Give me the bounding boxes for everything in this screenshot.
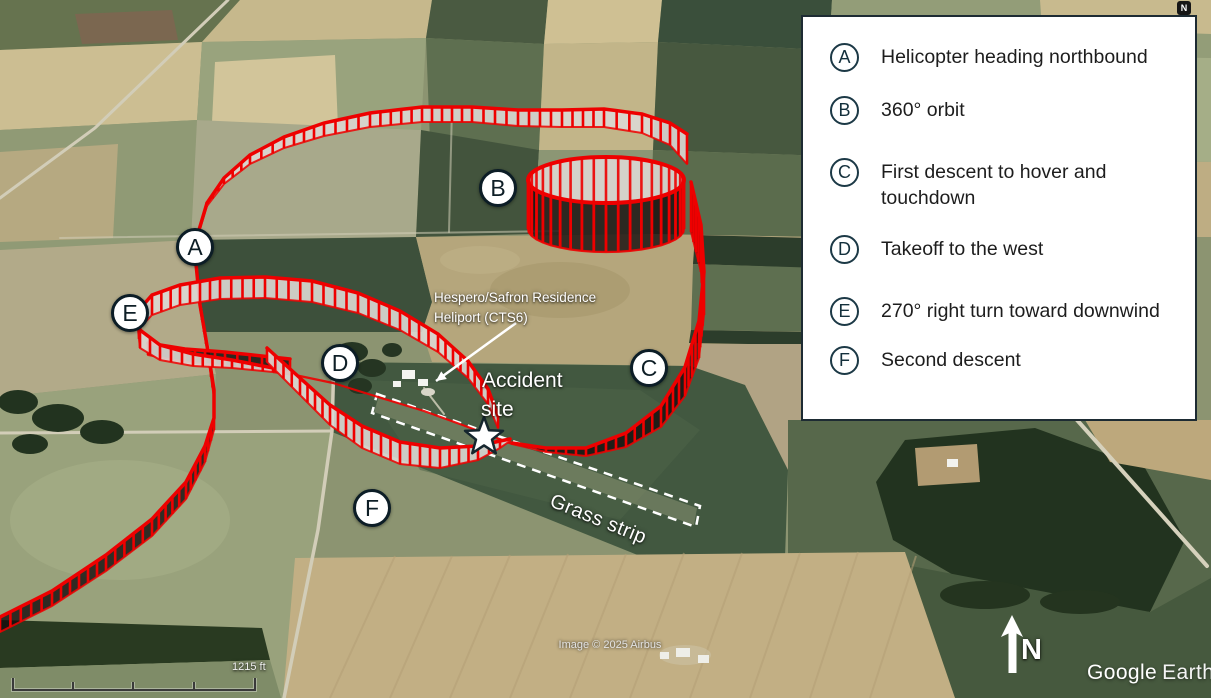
legend-item-B: B360° orbit [830,96,1175,125]
legend-item-F: FSecond descent [830,346,1175,375]
north-label: N [1021,634,1042,667]
heliport-label: Hespero/Safron Residence Heliport (CTS6) [434,288,596,329]
legend-items: AHelicopter heading northboundB360° orbi… [830,43,1175,375]
compass-north-icon[interactable]: N [1177,1,1191,15]
legend-item-A: AHelicopter heading northbound [830,43,1175,72]
legend-item-E: E270° right turn toward downwind [830,297,1175,326]
accident-site-label-line2: site [481,398,514,422]
legend-badge-B: B [830,96,859,125]
earth-wordmark: Earth [1162,661,1211,684]
google-earth-logo: GoogleEarth [1087,661,1211,685]
legend-label-D: Takeoff to the west [881,235,1175,262]
legend-item-D: DTakeoff to the west [830,235,1175,264]
legend-badge-C: C [830,158,859,187]
map-marker-C: C [630,349,668,387]
scale-bar-label: 1215 ft [232,661,266,673]
legend-badge-E: E [830,297,859,326]
legend-badge-A: A [830,43,859,72]
legend-panel: AHelicopter heading northboundB360° orbi… [801,15,1197,421]
legend-label-E: 270° right turn toward downwind [881,297,1175,324]
legend-label-B: 360° orbit [881,96,1175,123]
imagery-credit: Image © 2025 Airbus [540,639,680,651]
google-earth-figure: Hespero/Safron Residence Heliport (CTS6)… [0,0,1211,698]
map-marker-D: D [321,344,359,382]
map-marker-A: A [176,228,214,266]
legend-label-A: Helicopter heading northbound [881,43,1175,70]
legend-badge-F: F [830,346,859,375]
google-wordmark: Google [1087,661,1157,684]
legend-label-F: Second descent [881,346,1175,373]
legend-label-C: First descent to hover and touchdown [881,158,1175,212]
accident-site-label: Accident [482,369,563,393]
legend-badge-D: D [830,235,859,264]
map-marker-E: E [111,294,149,332]
map-marker-F: F [353,489,391,527]
legend-item-C: CFirst descent to hover and touchdown [830,158,1175,212]
map-marker-B: B [479,169,517,207]
